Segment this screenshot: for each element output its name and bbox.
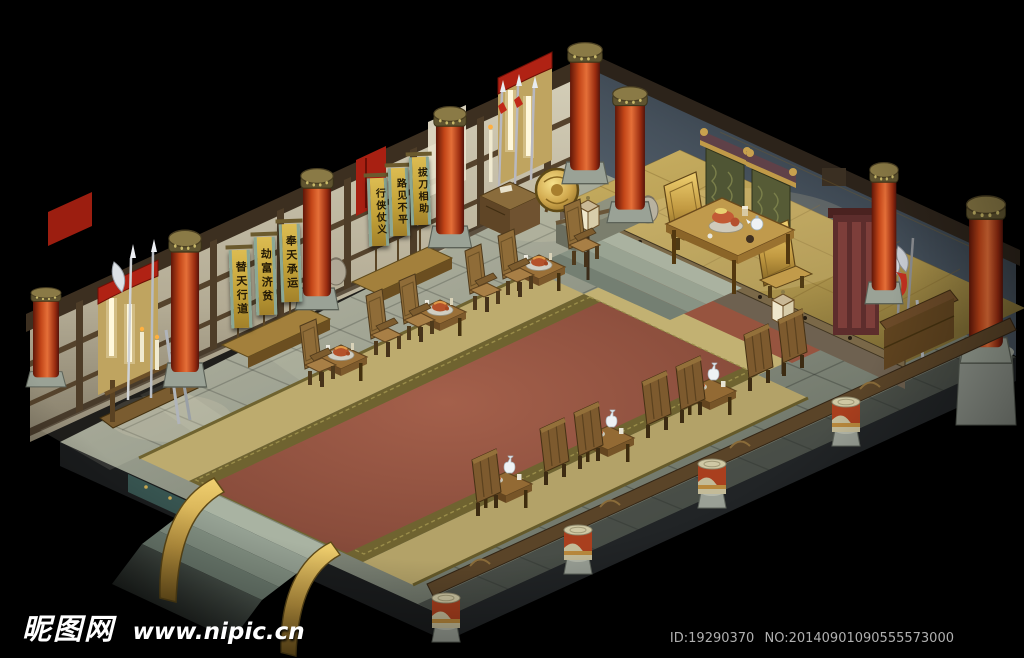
calligraphy-banner: 行侠仗义 <box>367 178 389 247</box>
calligraphy-banner: 替天行道 <box>229 250 253 329</box>
watermark-logo: 昵图网 www.nipic.cn <box>22 606 305 648</box>
watermark-id-number: ID:19290370 <box>670 631 754 646</box>
watermark-id: ID:19290370 NO:20140901090555573000 <box>664 631 954 646</box>
vignette-overlay <box>0 0 1024 658</box>
calligraphy-banner: 拔刀相助 <box>409 157 431 226</box>
watermark-site-url: www.nipic.cn <box>133 619 305 645</box>
calligraphy-banner: 奉天承运 <box>279 224 303 303</box>
game-scene-screenshot: 替天行道 劫富济贫 奉天承运 行侠仗义 路见不平 拔刀相助 昵图网 www.ni… <box>0 0 1024 658</box>
isometric-banquet-hall-illustration <box>0 0 1024 658</box>
watermark-site-name: 昵图网 <box>22 612 115 646</box>
calligraphy-banner: 劫富济贫 <box>254 237 278 316</box>
calligraphy-banner: 路见不平 <box>388 168 410 237</box>
watermark-no-number: NO:20140901090555573000 <box>764 631 954 646</box>
